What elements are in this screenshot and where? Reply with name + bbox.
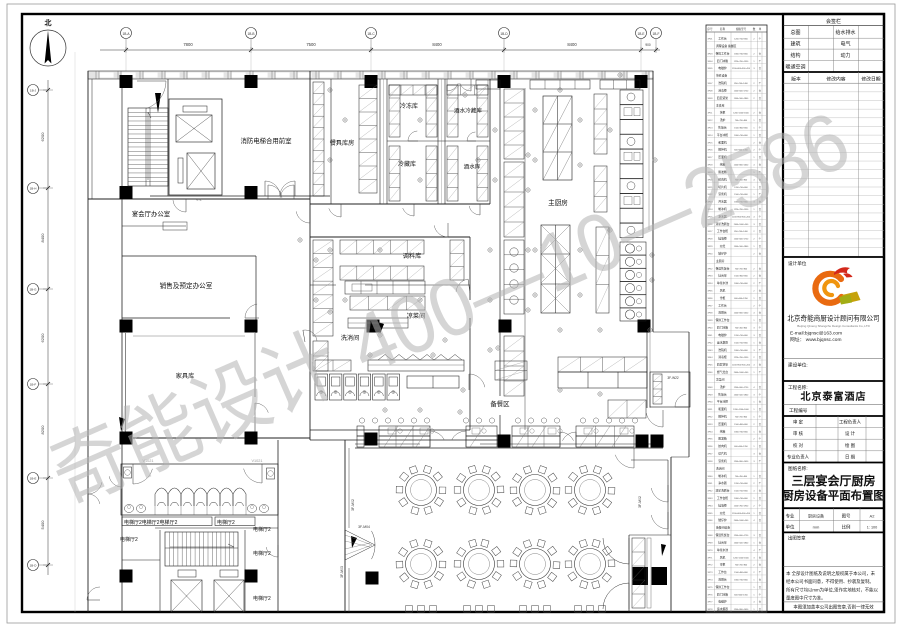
svg-text:醒发箱: 醒发箱 [718,437,727,441]
svg-text:1200×700×800: 1200×700×800 [734,38,748,41]
svg-text:给水排水: 给水排水 [835,29,855,36]
svg-text:厨房设备平面布置图: 厨房设备平面布置图 [782,489,885,503]
svg-text:工程编号: 工程编号 [789,407,808,414]
svg-text:3F76: 3F76 [708,594,714,596]
svg-text:雪柜: 雪柜 [720,296,726,300]
svg-text:3F55: 3F55 [708,439,714,441]
svg-text:主食库: 主食库 [716,103,725,107]
svg-text:3F52: 3F52 [708,416,714,418]
svg-text:3F11: 3F11 [708,113,714,115]
svg-text:7800: 7800 [183,42,193,47]
svg-text:3F-W22: 3F-W22 [667,376,679,380]
svg-text:3F29: 3F29 [708,246,714,248]
svg-text:调料库: 调料库 [403,252,422,260]
svg-text:保温售饭台: 保温售饭台 [716,533,730,537]
svg-text:本图须加盖本公司出图签章,否则一律无效: 本图须加盖本公司出图签章,否则一律无效 [793,604,874,611]
svg-text:蒸煮设备: 蒸煮设备 [716,74,727,78]
svg-text:900: 900 [645,43,651,47]
svg-text:5400: 5400 [40,520,45,530]
svg-text:850×700×1400: 850×700×1400 [734,82,748,85]
svg-text:2400×1000×500: 2400×1000×500 [734,371,749,374]
svg-text:3F-M02: 3F-M02 [638,496,642,508]
svg-text:北京奇能商厨设计顾问有限公司: 北京奇能商厨设计顾问有限公司 [787,314,879,323]
svg-text:3F62: 3F62 [708,491,714,493]
svg-text:3F42: 3F42 [708,342,714,344]
svg-text:3F70: 3F70 [708,550,714,552]
svg-text:1200×800×1650: 1200×800×1650 [734,608,749,611]
svg-text:调理设备 备餐区: 调理设备 备餐区 [716,44,737,48]
svg-text:专业负责人: 专业负责人 [787,453,810,460]
svg-text:3F37: 3F37 [708,305,714,307]
svg-text:审 定: 审 定 [793,419,804,426]
svg-text:保鲜工作台: 保鲜工作台 [716,318,730,322]
svg-text:图纸名称:: 图纸名称: [788,465,808,472]
svg-text:矮仔炉: 矮仔炉 [718,518,727,522]
svg-text:3F43: 3F43 [708,350,714,352]
svg-text:700×700×800: 700×700×800 [735,415,748,418]
svg-text:1800×760×800: 1800×760×800 [734,349,748,352]
svg-text:3F39: 3F39 [708,320,714,322]
svg-text:3F33: 3F33 [708,276,714,278]
svg-text:设计单位: 设计单位 [788,260,807,267]
svg-text:单位: 单位 [786,524,795,531]
svg-text:专业: 专业 [786,513,795,520]
svg-text:消毒柜: 消毒柜 [718,355,727,359]
svg-text:绘 图: 绘 图 [845,442,856,449]
svg-text:V1021: V1021 [252,459,263,463]
svg-text:1B-E: 1B-E [30,477,37,481]
svg-text:比例: 比例 [842,524,851,531]
svg-text:7500: 7500 [306,42,316,47]
svg-text:北: 北 [45,18,52,27]
svg-text:3F01: 3F01 [708,39,714,41]
svg-text:1500×800×800: 1500×800×800 [734,423,748,426]
svg-text:1500×500×1800: 1500×500×1800 [734,97,749,100]
svg-text:洗碗机: 洗碗机 [718,348,727,352]
svg-text:3F60: 3F60 [708,476,714,478]
svg-text:电梯厅2: 电梯厅2 [120,536,138,543]
svg-text:洗刷台: 洗刷台 [718,311,727,315]
svg-text:所有尺寸均以mm为单位,须作实地核对，不能以: 所有尺寸均以mm为单位,须作实地核对，不能以 [786,586,879,593]
svg-text:3F-M02: 3F-M02 [351,499,355,511]
svg-text:3F71: 3F71 [708,557,714,559]
svg-text:3F58: 3F58 [708,461,714,463]
svg-text:序号: 序号 [707,27,713,31]
svg-text:矮仔炉: 矮仔炉 [718,251,727,255]
svg-text:备餐区: 备餐区 [490,399,510,408]
svg-text:3F75: 3F75 [708,587,714,589]
svg-text:平台冰柜: 平台冰柜 [717,133,728,137]
svg-text:3F68: 3F68 [708,535,714,537]
svg-text:销售及预定办公室: 销售及预定办公室 [160,281,213,290]
svg-text:1500×500×1800: 1500×500×1800 [734,245,749,248]
svg-text:700×450×800: 700×450×800 [735,327,748,330]
svg-text:3F49: 3F49 [708,394,714,396]
svg-text:1B-A: 1B-A [122,32,130,36]
svg-text:1B-E: 1B-E [637,32,644,36]
svg-text:建设单位:: 建设单位: [788,362,808,369]
svg-text:消毒柜: 消毒柜 [718,88,727,92]
svg-text:双星洗刷台: 双星洗刷台 [716,489,730,493]
svg-text:电梯厅2: 电梯厅2 [253,550,271,557]
svg-text:工作台: 工作台 [718,303,727,307]
svg-text:Beijing Qineng Shangchu Desig: Beijing Qineng Shangchu Design Consultan… [797,324,870,328]
svg-text:3F48: 3F48 [708,387,714,389]
svg-text:制冰机: 制冰机 [718,474,727,478]
svg-text:3F08: 3F08 [708,90,714,92]
svg-text:3F63: 3F63 [708,498,714,500]
svg-text:设 计: 设 计 [845,430,856,437]
svg-text:规格型号: 规格型号 [736,27,747,31]
svg-text:6T1: 6T1 [196,198,202,202]
svg-text:工程负责人: 工程负责人 [839,419,862,426]
svg-text:经本公司书面同意，不得使用、抄袭及复制。: 经本公司书面同意，不得使用、抄袭及复制。 [786,578,874,585]
svg-text:备餐间设备: 备餐间设备 [716,526,730,530]
svg-text:电梯厅2: 电梯厅2 [253,526,271,533]
svg-text:网址： www.bjqnsc.com: 网址： www.bjqnsc.com [790,336,841,343]
svg-text:风机: 风机 [720,289,726,293]
svg-text:1200×800×800+450: 1200×800×800+450 [732,67,751,70]
svg-text:1800×760×800: 1800×760×800 [734,52,748,55]
svg-text:3F53: 3F53 [708,424,714,426]
svg-text:1220×760×1950: 1220×760×1950 [734,356,749,359]
svg-text:三层宴会厅厨房: 三层宴会厅厨房 [791,473,875,488]
svg-text:3F36: 3F36 [708,298,714,300]
svg-text:审 核: 审 核 [793,430,804,437]
svg-text:3F41: 3F41 [708,335,714,337]
svg-text:1220×760×1950: 1220×760×1950 [734,60,749,63]
svg-text:1500×700×800: 1500×700×800 [734,341,748,344]
svg-text:1B-H: 1B-H [30,187,37,191]
svg-text:3F78: 3F78 [708,609,714,611]
svg-text:凉菜间: 凉菜间 [716,377,725,381]
svg-text:灶台架: 灶台架 [718,540,727,544]
svg-text:1800×760×800: 1800×760×800 [734,282,748,285]
svg-text:酒水冷藏库: 酒水冷藏库 [454,107,482,115]
svg-text:1200×600×1750: 1200×600×1750 [734,534,749,537]
svg-text:3F07: 3F07 [708,83,714,85]
svg-text:平台冰柜: 平台冰柜 [717,400,728,404]
svg-text:3F-M04: 3F-M04 [358,525,370,529]
svg-text:8400: 8400 [567,42,577,47]
svg-text:电气: 电气 [840,41,850,48]
svg-text:1200×800×1650: 1200×800×1650 [734,312,749,315]
svg-text:冷冻库: 冷冻库 [400,102,418,110]
svg-text:3F09: 3F09 [708,98,714,100]
svg-text:600×600×1350: 600×600×1350 [734,445,748,448]
svg-text:电梯厅2: 电梯厅2 [253,595,271,602]
svg-text:炒灶: 炒灶 [720,511,726,515]
svg-text:1B-B: 1B-B [247,32,254,36]
svg-text:3F44: 3F44 [708,357,714,359]
svg-text:汤炉: 汤炉 [720,385,726,389]
svg-text:1800×760×800: 1800×760×800 [734,579,748,582]
svg-text:校 对: 校 对 [793,442,804,449]
svg-text:洗刷台: 洗刷台 [718,578,727,582]
svg-text:单: 单 [759,27,762,31]
svg-text:风机: 风机 [720,555,726,559]
svg-text:四层货架: 四层货架 [717,96,728,100]
svg-text:3F14: 3F14 [708,135,714,137]
svg-text:洗碗机: 洗碗机 [718,81,727,85]
svg-text:1B-J: 1B-J [30,89,37,93]
svg-text:3F04: 3F04 [708,61,714,63]
svg-text:工程名称:: 工程名称: [788,384,808,391]
svg-text:四门冰箱: 四门冰箱 [717,326,728,330]
svg-text:1B-G: 1B-G [29,288,37,292]
svg-text:1B-F: 1B-F [30,383,37,387]
svg-text:3F03: 3F03 [708,53,714,55]
svg-text:3F77: 3F77 [708,602,714,604]
svg-text:1200×600×1750: 1200×600×1750 [734,386,749,389]
svg-text:3F32: 3F32 [708,268,714,270]
svg-text:保鲜工作台: 保鲜工作台 [716,585,730,589]
svg-text:修改日期: 修改日期 [861,76,880,83]
svg-text:蒸柜: 蒸柜 [720,111,726,115]
svg-text:搅拌机: 搅拌机 [718,414,727,418]
svg-text:1800×760×800: 1800×760×800 [734,430,748,433]
svg-text:建筑: 建筑 [790,41,800,48]
svg-text:3F12: 3F12 [708,120,714,122]
svg-text:3F74: 3F74 [708,580,714,582]
svg-text:3F13: 3F13 [708,127,714,129]
svg-text:保温售饭台: 保温售饭台 [716,266,730,270]
svg-text:压面机: 压面机 [718,422,727,426]
svg-text:1500×800×800: 1500×800×800 [734,571,748,574]
svg-text:售饭台: 售饭台 [718,392,727,396]
svg-text:1500×500×1800: 1500×500×1800 [734,541,749,544]
svg-text:1200×800×800+450: 1200×800×800+450 [732,512,751,515]
svg-text:3F45: 3F45 [708,365,714,367]
svg-text:四门冰箱: 四门冰箱 [717,592,728,596]
svg-text:和面机: 和面机 [718,407,727,411]
svg-text:3F05: 3F05 [708,68,714,70]
svg-text:单星水池: 单星水池 [717,548,728,552]
svg-text:切片机: 切片机 [718,452,727,456]
svg-text:会签栏: 会签栏 [826,18,841,25]
svg-text:保鲜工作台: 保鲜工作台 [716,51,730,55]
svg-text:600×600×1350: 600×600×1350 [734,297,748,300]
svg-text:6200: 6200 [40,132,45,142]
svg-text:1220×760×1950: 1220×760×1950 [734,504,749,507]
svg-text:电梯厅2电梯厅2电梯厅2: 电梯厅2电梯厅2电梯厅2 [124,519,178,526]
svg-text:工作台柜: 工作台柜 [717,496,728,500]
svg-text:2400×1000×500: 2400×1000×500 [734,519,749,522]
svg-text:700×700×800: 700×700×800 [735,564,748,567]
svg-text:3F40: 3F40 [708,328,714,330]
svg-text:运水烟罩: 运水烟罩 [717,340,728,344]
svg-text:3F61: 3F61 [708,483,714,485]
svg-text:1B-C: 1B-C [367,32,375,36]
svg-text:3F64: 3F64 [708,505,714,507]
svg-text:暖通空调: 暖通空调 [785,63,805,70]
svg-text:3F46: 3F46 [708,372,714,374]
svg-text:电磁炉: 电磁炉 [718,66,727,70]
svg-text:餐具库房: 餐具库房 [330,139,355,147]
svg-text:1800×760×800: 1800×760×800 [734,497,748,500]
svg-text:600×600×1350: 600×600×1350 [734,593,748,596]
svg-text:运水烟罩: 运水烟罩 [717,607,728,611]
svg-text:结构: 结构 [790,52,800,59]
svg-text:冷藏库: 冷藏库 [398,160,416,168]
svg-text:数: 数 [753,27,756,31]
svg-text:1200×800×800+450: 1200×800×800+450 [732,364,751,367]
svg-text:1200×1100×1600: 1200×1100×1600 [733,556,749,559]
svg-text:北京泰富酒店: 北京泰富酒店 [801,390,867,403]
svg-text:1200×600×1750: 1200×600×1750 [734,238,749,241]
svg-text:1B-D: 1B-D [30,564,38,568]
svg-text:3F30: 3F30 [708,253,714,255]
svg-text:8400: 8400 [432,42,442,47]
svg-text:四层货架: 四层货架 [717,363,728,367]
svg-text:绞肉机: 绞肉机 [718,444,727,448]
svg-text:烤箱: 烤箱 [720,429,726,433]
svg-text:本 全部设计图纸及说明之版权属于本公司，未: 本 全部设计图纸及说明之版权属于本公司，未 [786,570,876,577]
svg-text:A2: A2 [870,514,876,519]
svg-text:量度图中尺寸为准。: 量度图中尺寸为准。 [786,595,826,602]
svg-text:售饭台: 售饭台 [718,125,727,129]
svg-text:消防电梯合用前室: 消防电梯合用前室 [240,136,292,145]
svg-text:洗消间: 洗消间 [716,466,725,470]
svg-text:3F54: 3F54 [708,431,714,433]
svg-text:豆浆机: 豆浆机 [718,459,727,463]
svg-text:厨房设备: 厨房设备 [808,513,824,519]
svg-text:炒灶: 炒灶 [720,244,726,248]
svg-text:6200: 6200 [40,333,45,343]
svg-text:1B-F: 1B-F [653,32,660,36]
svg-text:汤炉: 汤炉 [720,118,726,122]
svg-text:3F72: 3F72 [708,565,714,567]
svg-text:1200×700×800: 1200×700×800 [734,334,748,337]
svg-text:净水器: 净水器 [718,481,727,485]
svg-text:3F51: 3F51 [708,409,714,411]
svg-text:1500×500×1800: 1500×500×1800 [734,393,749,396]
svg-text:3F-M03: 3F-M03 [340,566,344,578]
svg-text:总图: 总图 [790,29,800,36]
svg-text:灶台架: 灶台架 [718,274,727,278]
svg-text:3F57: 3F57 [708,454,714,456]
svg-text:1200×600×1750: 1200×600×1750 [734,89,749,92]
svg-text:mm: mm [813,525,820,530]
svg-text:动力: 动力 [840,52,850,59]
svg-text:工作台: 工作台 [718,570,727,574]
svg-text:3F50: 3F50 [708,402,714,404]
svg-text:挂墙柜: 挂墙柜 [718,503,727,507]
svg-text:版本: 版本 [791,76,801,83]
svg-text:名称: 名称 [720,27,726,31]
svg-text:3F35: 3F35 [708,291,714,293]
svg-text:1200×800×1650: 1200×800×1650 [734,460,749,463]
svg-text:电磁炉: 电磁炉 [718,600,727,604]
svg-text:700×700×800: 700×700×800 [735,119,748,122]
svg-text:1500×800×800: 1500×800×800 [734,275,748,278]
svg-text:3F66: 3F66 [708,520,714,522]
svg-text:1200×700×800: 1200×700×800 [734,482,748,485]
svg-text:出图签章: 出图签章 [788,535,806,542]
svg-text:3F34: 3F34 [708,283,714,285]
svg-text:四门冰箱: 四门冰箱 [717,59,728,63]
svg-text:3F65: 3F65 [708,513,714,515]
svg-text:3F73: 3F73 [708,572,714,574]
svg-text:酒水库: 酒水库 [464,163,481,171]
svg-text:电磁炉: 电磁炉 [718,333,727,337]
svg-text:3F38: 3F38 [708,313,714,315]
svg-text:3F56: 3F56 [708,446,714,448]
svg-text:主厨房: 主厨房 [548,198,568,207]
svg-text:1500×700×800: 1500×700×800 [734,490,748,493]
svg-text:700×450×800: 700×450×800 [735,475,748,478]
svg-text:单星水池: 单星水池 [717,281,728,285]
svg-text:1200×1100×1600: 1200×1100×1600 [733,112,749,115]
svg-text:燃气灶台: 燃气灶台 [717,370,728,374]
svg-text:1200×1100×1600: 1200×1100×1600 [733,408,749,411]
svg-text:修改内容: 修改内容 [826,76,845,83]
svg-text:3F69: 3F69 [708,542,714,544]
svg-text:700×700×800: 700×700×800 [735,267,748,270]
svg-text:工作台: 工作台 [718,37,727,41]
svg-text:1: 100: 1: 100 [867,526,878,530]
svg-text:8400: 8400 [40,233,45,243]
svg-text:雪柜: 雪柜 [720,563,726,567]
svg-text:8200: 8200 [40,425,45,435]
svg-text:1B-D: 1B-D [500,32,508,36]
svg-text:电梯厅2: 电梯厅2 [217,519,235,526]
svg-text:宴会厅办公室: 宴会厅办公室 [132,209,171,218]
svg-text:E-mail:bjqnsc@163.com: E-mail:bjqnsc@163.com [790,331,842,337]
svg-text:主厨房: 主厨房 [716,259,725,263]
